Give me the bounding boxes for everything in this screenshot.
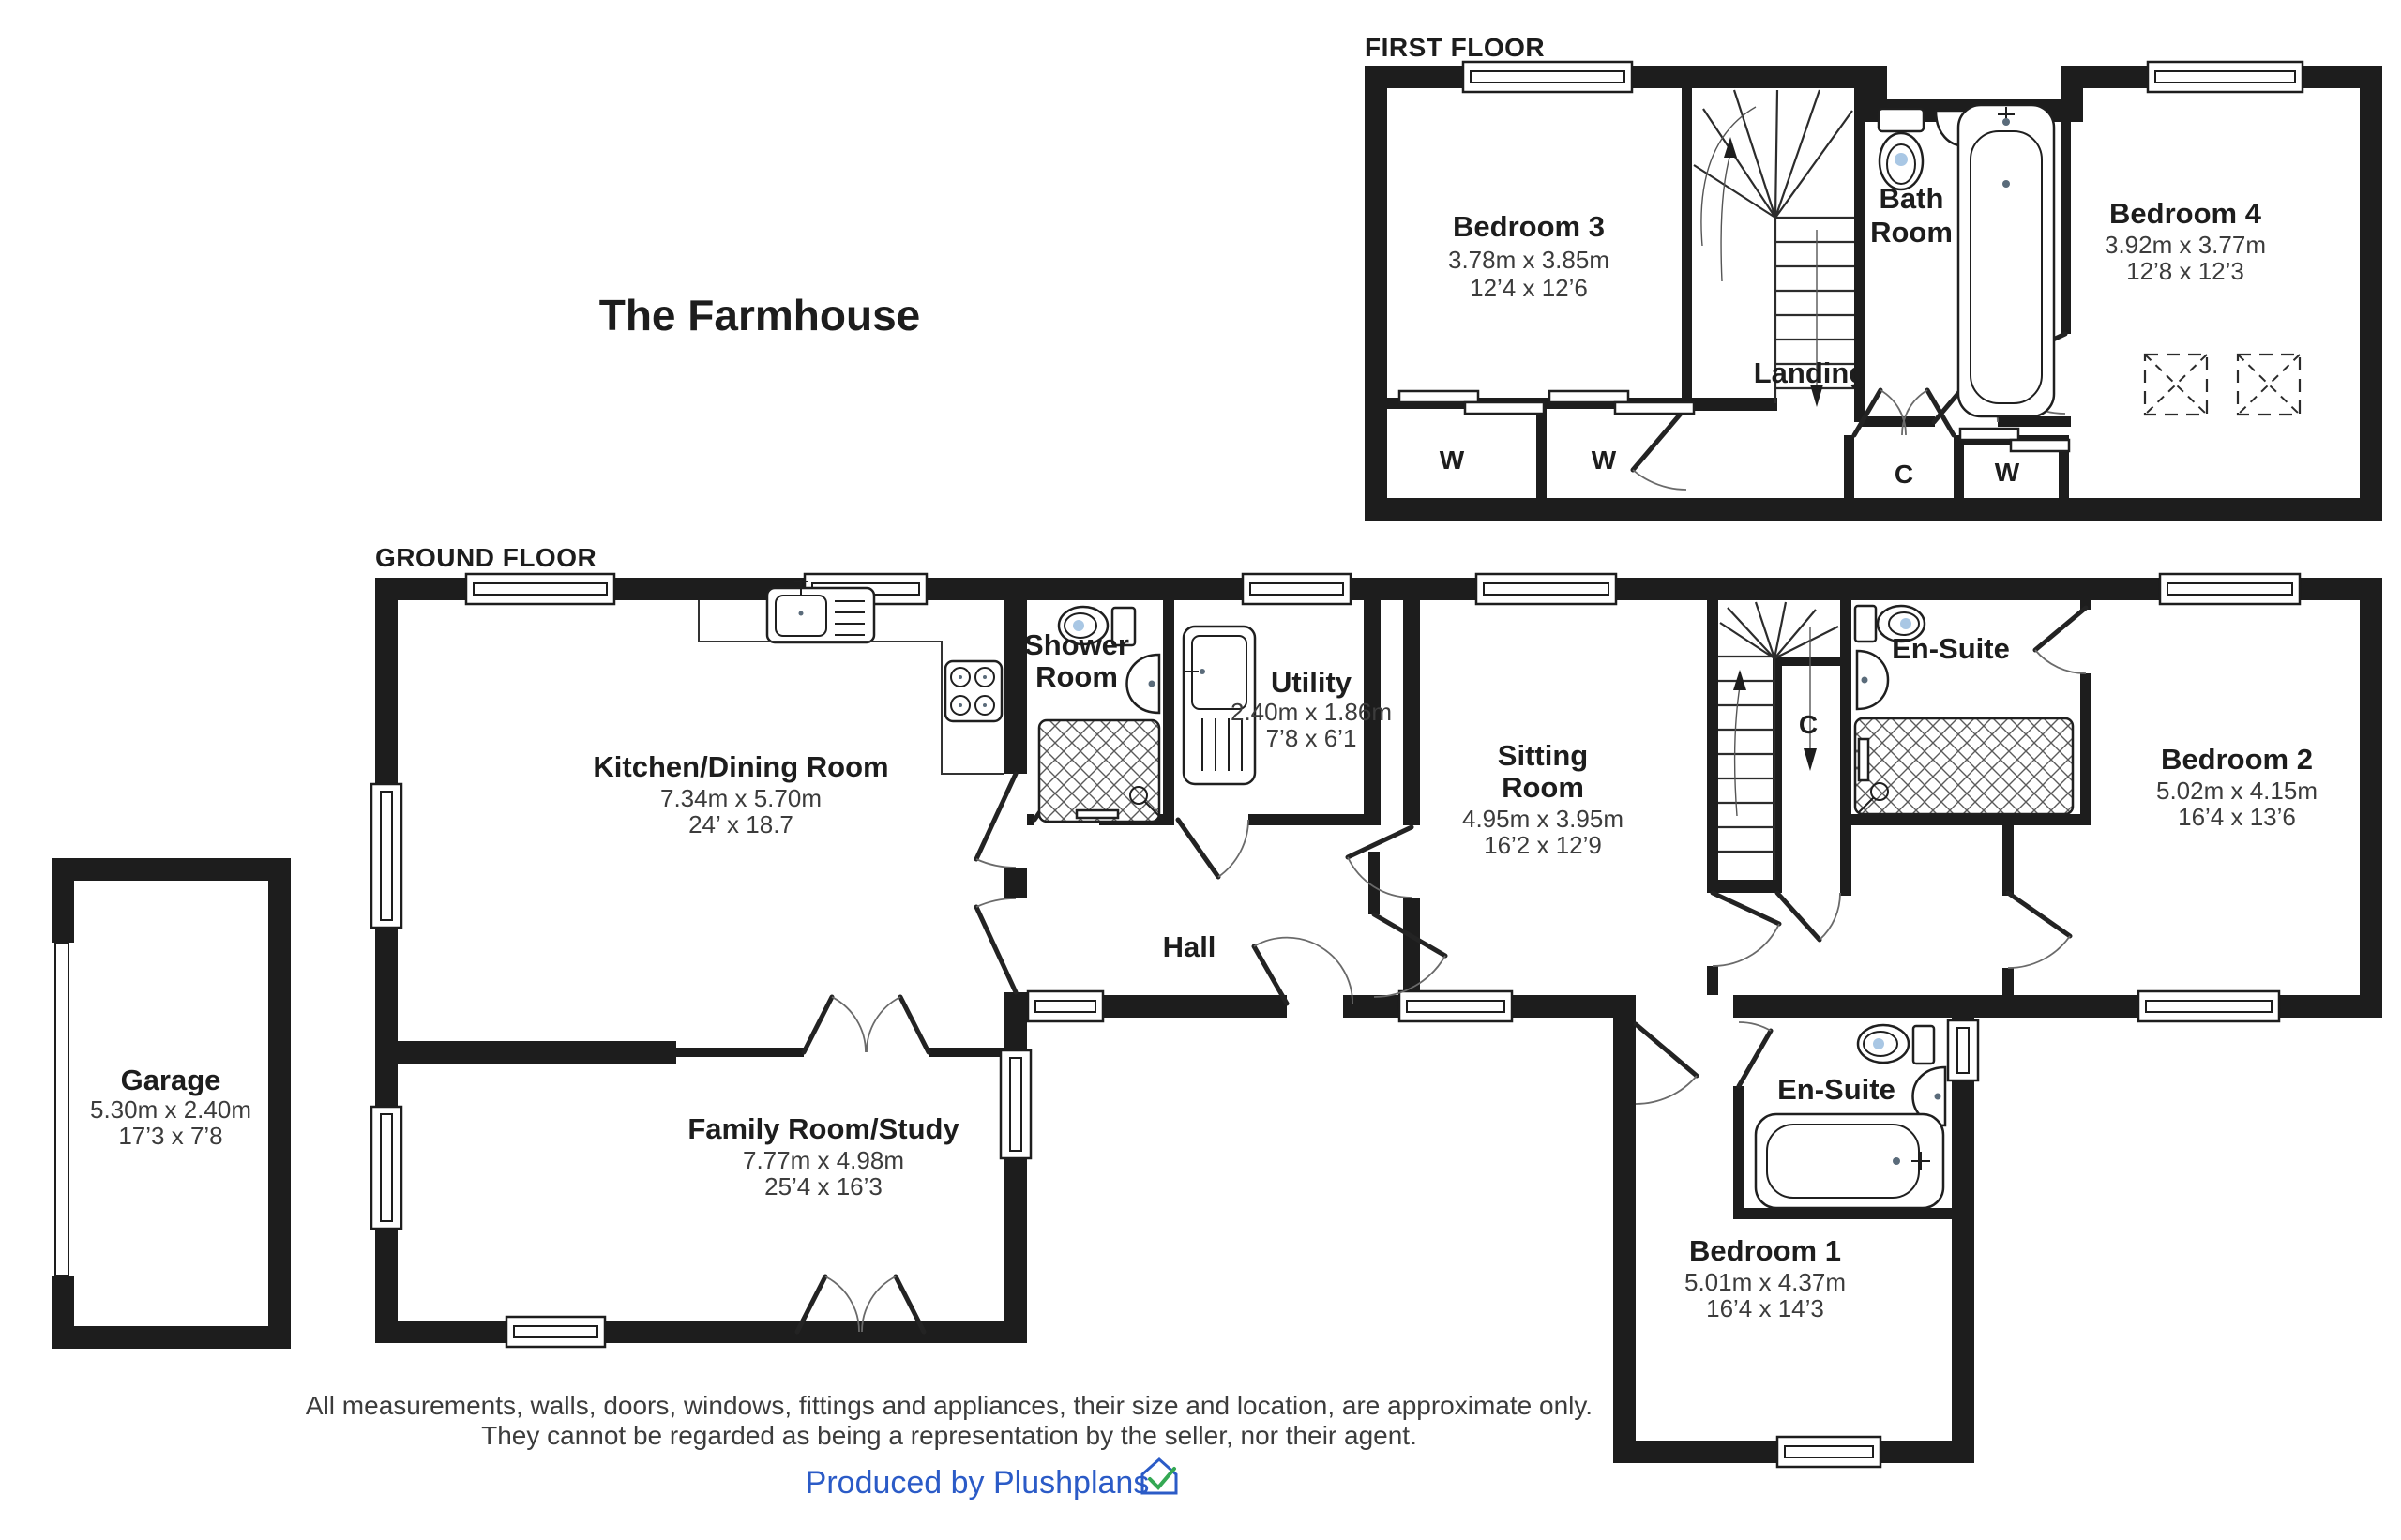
room-label-garage: Garage [121,1064,221,1096]
room-label-landing: Landing [1754,356,1867,389]
page-title: The Farmhouse [599,291,921,340]
closet-label-w2: W [1592,445,1617,475]
room-dims-metric: 7.34m x 5.70m [660,784,822,812]
garage-door [50,943,76,1276]
room-label-utility: Utility [1271,666,1352,699]
toilet-icon [1879,109,1924,189]
ground-floor-label: GROUND FLOOR [375,543,596,572]
basin-icon [1127,655,1160,713]
room-dims-metric: 5.02m x 4.15m [2156,777,2318,805]
first-floor-plan: FIRST FLOOR Bedroom 3 3.78m x 3.85m 12’4… [1365,33,2382,521]
room-label-bathroom: Room [1870,216,1953,249]
room-dims-metric: 5.01m x 4.37m [1684,1268,1846,1296]
room-label-sitting-room: Room [1502,771,1584,804]
bathtub-icon [1756,1114,1943,1208]
room-label-bedroom2: Bedroom 2 [2161,743,2313,776]
room-dims-imperial: 16’2 x 12’9 [1484,831,1602,859]
disclaimer-line2: They cannot be regarded as being a repre… [481,1421,1417,1450]
basin-icon [1857,651,1888,709]
room-label-ensuite-top: En-Suite [1892,632,2010,665]
credit-text: Produced by Plushplans [806,1465,1150,1501]
room-dims-metric: 4.95m x 3.95m [1462,805,1623,833]
room-label-bedroom4: Bedroom 4 [2109,197,2262,230]
room-dims-imperial: 16’4 x 14’3 [1706,1294,1824,1322]
room-label-family-room: Family Room/Study [687,1112,959,1145]
room-dims-imperial: 24’ x 18.7 [688,810,793,838]
garage-plan: Garage 5.30m x 2.40m 17’3 x 7’8 [50,858,291,1349]
toilet-icon [1858,1025,1934,1064]
room-dims-imperial: 16’4 x 13’6 [2178,803,2296,831]
room-dims-metric: 7.77m x 4.98m [743,1146,904,1174]
room-dims-metric: 5.30m x 2.40m [90,1095,251,1124]
floorplan-canvas: FIRST FLOOR Bedroom 3 3.78m x 3.85m 12’4… [0,0,2401,1540]
room-dims-imperial: 25’4 x 16’3 [764,1172,883,1200]
closet-label-c: C [1799,710,1818,739]
shower-tray-icon [1855,718,2073,814]
room-label-bedroom3: Bedroom 3 [1453,210,1605,243]
first-floor-label: FIRST FLOOR [1365,33,1545,62]
room-label-sitting-room: Sitting [1498,739,1588,772]
room-label-hall: Hall [1163,930,1216,963]
room-label-bathroom: Bath [1880,182,1944,215]
ground-floor-plan: GROUND FLOOR Kitchen/Dining Room 7.34m x… [371,543,2382,1467]
floorplan-svg: FIRST FLOOR Bedroom 3 3.78m x 3.85m 12’4… [0,0,2401,1540]
room-dims-metric: 3.92m x 3.77m [2105,231,2266,259]
room-dims-imperial: 7’8 x 6’1 [1266,724,1357,752]
shower-tray-icon [1039,720,1163,822]
room-label-shower-room: Room [1035,660,1118,693]
room-dims-metric: 3.78m x 3.85m [1448,246,1609,274]
room-label-kitchen: Kitchen/Dining Room [593,750,888,783]
disclaimer-line1: All measurements, walls, doors, windows,… [306,1391,1593,1420]
room-label-bedroom1: Bedroom 1 [1689,1234,1841,1267]
bathtub-icon [1958,105,2054,416]
room-dims-imperial: 12’8 x 12’3 [2126,257,2244,285]
room-label-ensuite-bottom: En-Suite [1777,1073,1895,1106]
room-label-shower-room: Shower [1024,628,1129,661]
closet-label-w1: W [1440,445,1465,475]
room-dims-metric: 2.40m x 1.86m [1231,698,1392,726]
hob-icon [945,661,1002,721]
room-dims-imperial: 12’4 x 12’6 [1470,274,1588,302]
skylight-icon [2145,355,2300,415]
room-dims-imperial: 17’3 x 7’8 [118,1122,222,1150]
sink-icon [767,580,874,642]
closet-label-c: C [1895,460,1913,489]
closet-label-w3: W [1995,458,2020,487]
